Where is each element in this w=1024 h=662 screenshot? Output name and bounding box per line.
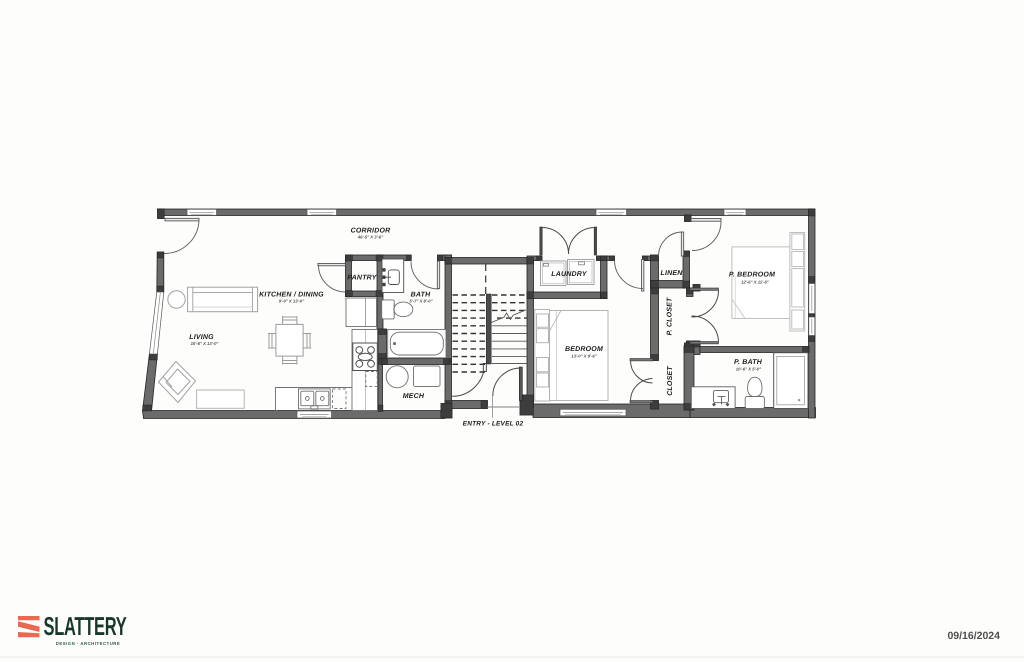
svg-text:CLOSET: CLOSET [667, 366, 674, 396]
svg-text:CORRIDOR: CORRIDOR [351, 228, 391, 235]
svg-text:SLATTERY: SLATTERY [44, 611, 127, 641]
svg-text:15'-6" X 13'-0": 15'-6" X 13'-0" [191, 341, 220, 346]
svg-text:LAUNDRY: LAUNDRY [551, 271, 588, 278]
svg-text:BEDROOM: BEDROOM [565, 346, 603, 353]
svg-text:MECH: MECH [403, 393, 425, 400]
svg-text:09/16/2024: 09/16/2024 [947, 630, 1000, 642]
svg-text:P. CLOSET: P. CLOSET [667, 297, 674, 335]
svg-text:12'-6" X 11'-6": 12'-6" X 11'-6" [741, 280, 770, 285]
svg-text:9'-0" X 13'-0": 9'-0" X 13'-0" [279, 299, 306, 304]
svg-text:DESIGN · ARCHITECTURE: DESIGN · ARCHITECTURE [56, 641, 121, 646]
svg-text:PANTRY: PANTRY [347, 275, 377, 282]
svg-text:BATH: BATH [411, 292, 431, 299]
svg-text:P. BATH: P. BATH [734, 359, 763, 366]
svg-text:ENTRY - LEVEL 02: ENTRY - LEVEL 02 [463, 421, 524, 428]
svg-text:LIVING: LIVING [189, 334, 214, 341]
svg-text:5'-7" X 8'-0": 5'-7" X 8'-0" [409, 299, 433, 304]
svg-text:46'-5" X 3'-6": 46'-5" X 3'-6" [357, 235, 385, 240]
svg-text:LINEN: LINEN [661, 270, 684, 277]
svg-text:KITCHEN / DINING: KITCHEN / DINING [259, 290, 324, 298]
svg-text:P. BEDROOM: P. BEDROOM [729, 272, 775, 279]
svg-text:13'-0" X 9'-6": 13'-0" X 9'-6" [571, 354, 598, 359]
svg-text:10'-6" X 5'-0": 10'-6" X 5'-0" [736, 367, 763, 372]
